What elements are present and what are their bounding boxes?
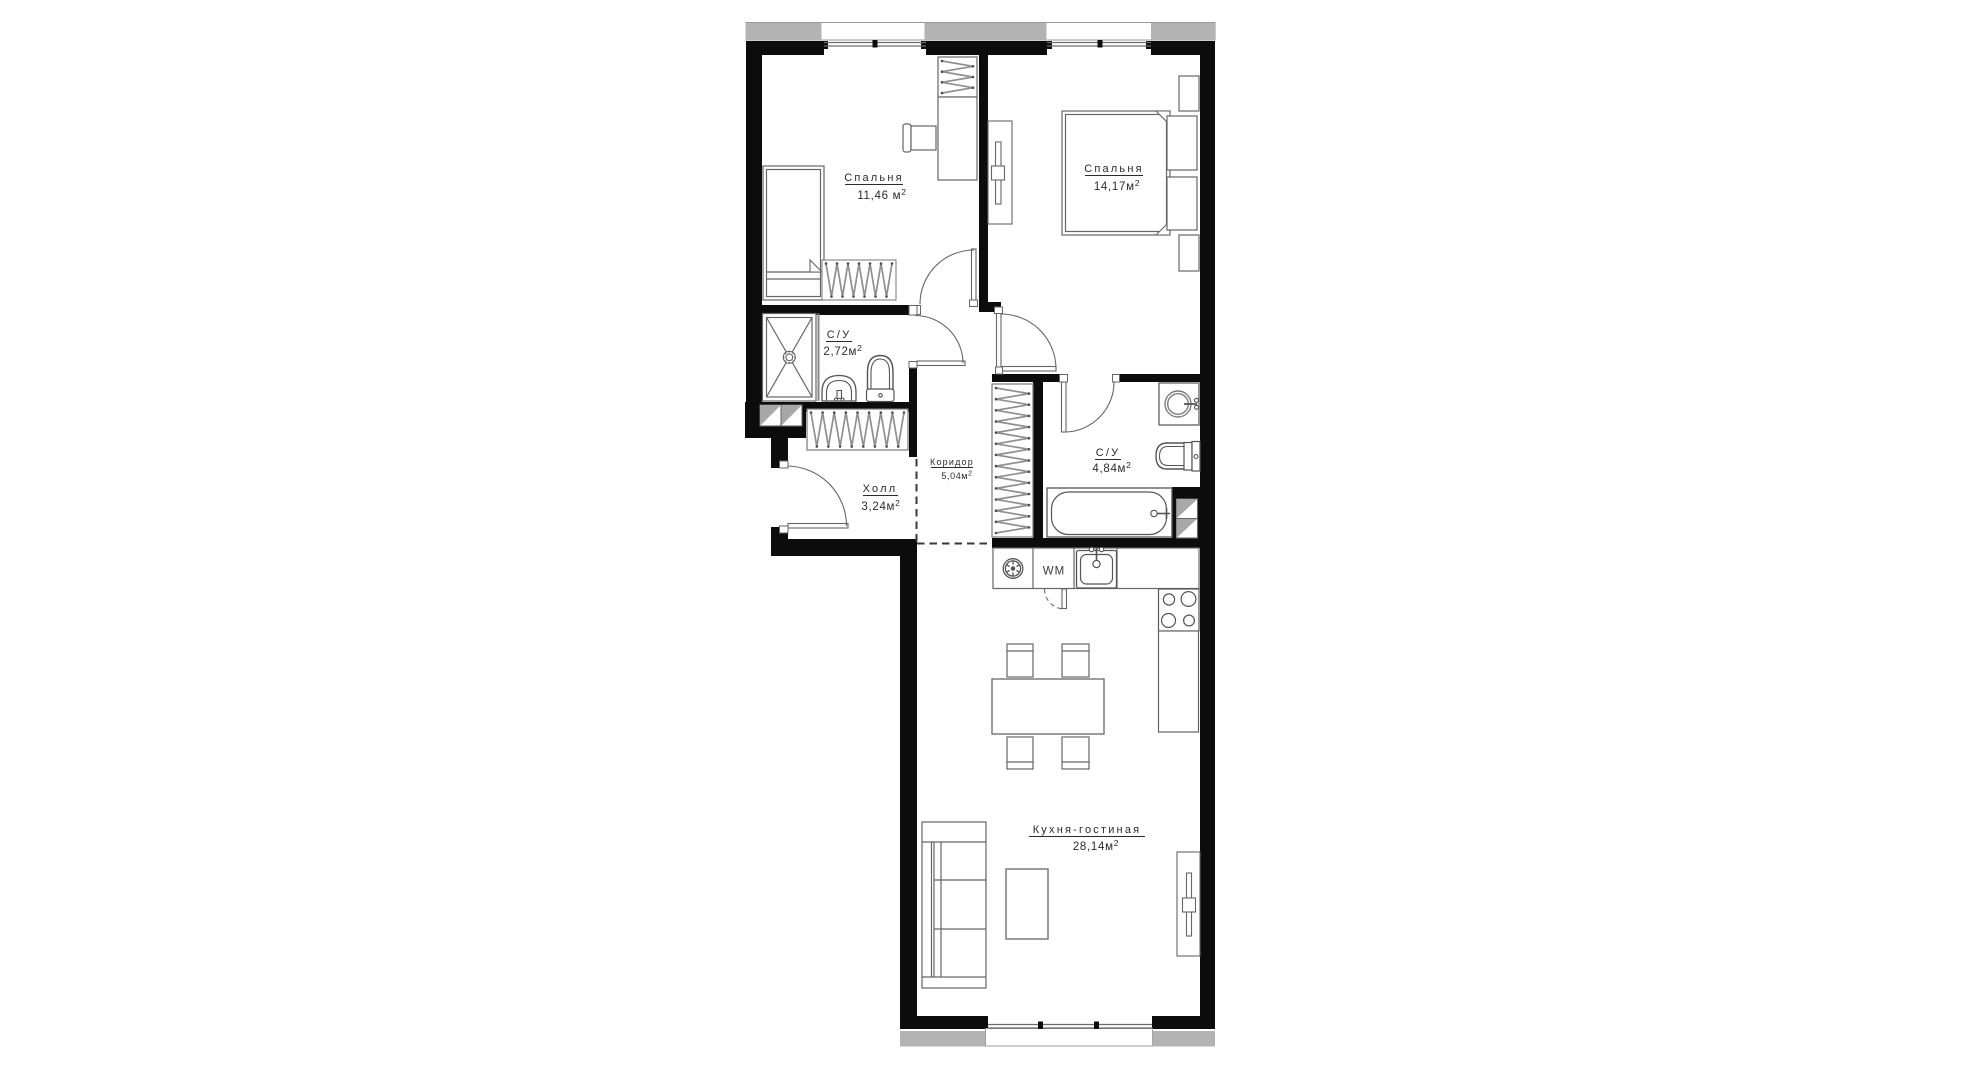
svg-text:5,04м2: 5,04м2 xyxy=(941,471,972,482)
svg-text:С/У: С/У xyxy=(827,329,852,341)
svg-text:С/У: С/У xyxy=(1096,447,1121,459)
svg-text:Кухня-гостиная: Кухня-гостиная xyxy=(1033,824,1142,836)
svg-text:Холл: Холл xyxy=(863,483,898,495)
svg-text:11,46 м2: 11,46 м2 xyxy=(857,187,906,202)
svg-text:28,14м2: 28,14м2 xyxy=(1073,838,1119,853)
svg-text:Спальня: Спальня xyxy=(1084,163,1144,175)
svg-text:3,24м2: 3,24м2 xyxy=(861,498,900,513)
svg-text:2,72м2: 2,72м2 xyxy=(823,343,862,358)
svg-text:Спальня: Спальня xyxy=(844,172,904,184)
svg-text:4,84м2: 4,84м2 xyxy=(1092,460,1131,475)
svg-text:Коридор: Коридор xyxy=(930,457,974,467)
svg-text:WM: WM xyxy=(1043,566,1065,578)
svg-text:14,17м2: 14,17м2 xyxy=(1094,178,1140,193)
